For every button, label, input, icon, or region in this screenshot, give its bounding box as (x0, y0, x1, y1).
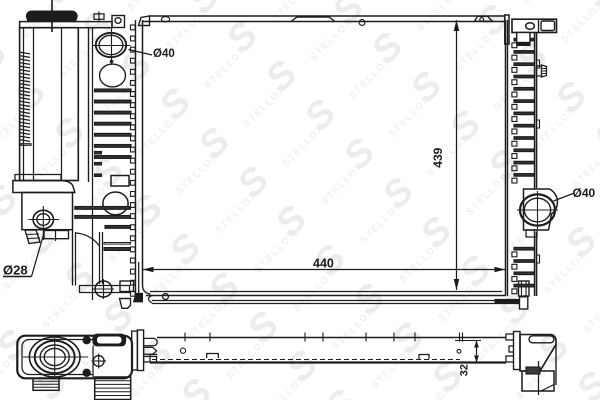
svg-text:Ø40: Ø40 (153, 48, 175, 60)
svg-text:440: 440 (313, 257, 334, 271)
svg-text:32: 32 (459, 364, 471, 376)
svg-text:Ø28: Ø28 (3, 263, 28, 278)
svg-text:439: 439 (431, 147, 445, 167)
svg-text:Ø40: Ø40 (573, 186, 596, 200)
